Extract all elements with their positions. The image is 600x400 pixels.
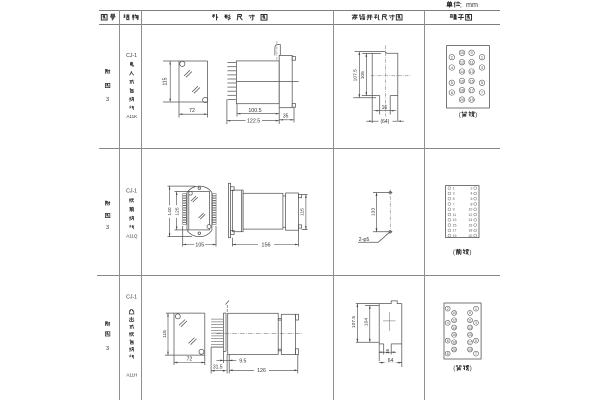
svg-text:105: 105 [195,242,204,248]
svg-text:7: 7 [475,352,477,356]
svg-text:5: 5 [475,339,477,343]
svg-text:9: 9 [471,50,473,55]
svg-text:A11K: A11K [126,114,138,119]
svg-text:15: 15 [468,333,472,337]
svg-text:125: 125 [174,207,180,215]
svg-text:1: 1 [481,55,483,60]
svg-text:6: 6 [447,339,449,343]
svg-text:17: 17 [469,88,473,93]
svg-text:A11H: A11H [126,373,137,378]
svg-text:8: 8 [451,90,453,95]
svg-text:140: 140 [167,207,173,215]
svg-text:(64): (64) [380,119,389,125]
svg-text:18: 18 [468,229,472,233]
svg-text:18: 18 [460,88,464,93]
svg-text:12: 12 [468,213,472,217]
svg-text:14: 14 [452,326,456,330]
svg-text:13: 13 [468,326,472,330]
svg-text:9.5: 9.5 [239,358,246,364]
svg-text:8: 8 [470,202,472,206]
svg-text:10: 10 [468,208,472,212]
svg-text:3: 3 [453,192,455,196]
svg-text:16: 16 [468,223,472,227]
svg-text:5: 5 [453,197,455,201]
svg-text:16: 16 [382,105,388,111]
svg-text:12: 12 [452,319,456,323]
svg-text:115: 115 [162,330,168,338]
svg-text:9: 9 [469,311,471,315]
svg-text:115: 115 [163,77,169,85]
svg-text:9: 9 [453,208,455,212]
svg-text:4: 4 [470,192,472,196]
svg-text:CJ-1: CJ-1 [126,295,137,301]
svg-text:6: 6 [451,80,453,85]
svg-text:A11Q: A11Q [126,233,138,238]
svg-text:12: 12 [460,60,464,65]
svg-text:72: 72 [189,108,195,114]
svg-text:): ) [475,112,477,119]
svg-text:3: 3 [481,65,483,70]
svg-text:19: 19 [468,348,472,352]
svg-text:1: 1 [475,307,477,311]
svg-text:115: 115 [300,208,306,216]
svg-text:4: 4 [447,321,449,325]
svg-text:2: 2 [447,307,449,311]
svg-text:133: 133 [370,208,376,216]
svg-text:mm: mm [466,0,478,9]
svg-text:8: 8 [447,352,449,356]
svg-text:107.5: 107.5 [351,316,357,329]
svg-text:3: 3 [106,346,109,352]
svg-text:11: 11 [468,319,472,323]
svg-text:19: 19 [469,97,473,102]
svg-text:CJ-1: CJ-1 [126,53,137,59]
svg-text:3: 3 [475,321,477,325]
svg-text:13: 13 [453,218,457,222]
svg-text:): ) [469,249,471,256]
svg-text:17: 17 [453,229,457,233]
svg-text:100.5: 100.5 [248,108,261,114]
svg-text:104: 104 [364,318,370,326]
svg-text:16: 16 [385,349,390,355]
svg-text:16: 16 [460,78,464,83]
svg-text:105: 105 [360,71,366,79]
svg-text:：: ： [459,2,466,9]
svg-text:107.5: 107.5 [353,69,359,82]
svg-text:2-φ5: 2-φ5 [359,237,370,243]
svg-text:1: 1 [453,186,455,190]
svg-text:64: 64 [388,358,394,364]
svg-text:CJ-1: CJ-1 [126,189,137,195]
svg-text:15: 15 [453,223,457,227]
svg-text:5: 5 [481,80,483,85]
svg-text:72: 72 [186,356,192,362]
svg-text:20: 20 [468,234,472,238]
svg-text:18: 18 [452,341,456,345]
svg-text:2: 2 [451,55,453,60]
svg-text:156: 156 [261,242,270,248]
svg-text:13: 13 [469,69,473,74]
svg-text:2: 2 [470,186,472,190]
svg-text:6: 6 [470,197,472,201]
svg-text:14: 14 [468,218,472,222]
svg-text:11: 11 [453,213,457,217]
svg-text:16: 16 [452,333,456,337]
svg-text:7: 7 [453,202,455,206]
svg-text:): ) [470,365,472,372]
svg-text:126: 126 [257,368,266,374]
svg-text:19: 19 [453,234,457,238]
svg-text:20: 20 [452,348,456,352]
svg-text:17: 17 [468,341,472,345]
svg-text:31.5: 31.5 [213,365,223,371]
svg-text:11: 11 [470,60,474,65]
svg-text:7: 7 [481,90,483,95]
svg-text:35: 35 [283,114,289,120]
svg-text:3: 3 [106,225,109,231]
svg-text:15: 15 [469,78,473,83]
svg-text:122.5: 122.5 [247,119,260,125]
svg-text:10: 10 [452,311,456,315]
svg-text:3: 3 [106,97,109,103]
